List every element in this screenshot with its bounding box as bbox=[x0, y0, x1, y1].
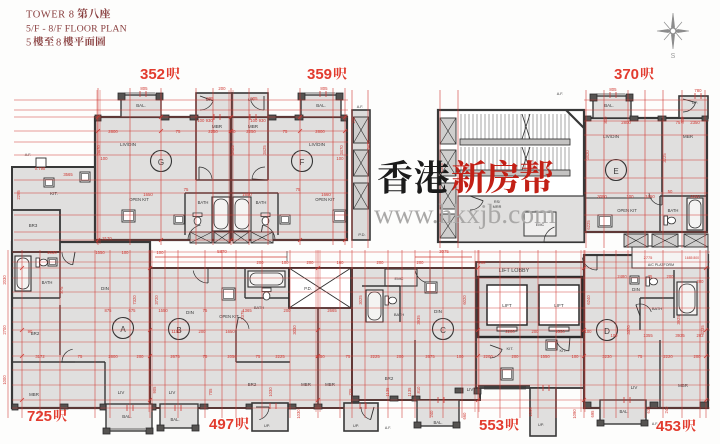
svg-text:497: 497 bbox=[209, 416, 234, 433]
svg-text:100: 100 bbox=[626, 194, 634, 199]
svg-text:3470: 3470 bbox=[366, 140, 371, 150]
svg-text:75: 75 bbox=[256, 354, 261, 359]
svg-text:705: 705 bbox=[348, 388, 353, 396]
svg-text:1135: 1135 bbox=[385, 387, 390, 397]
svg-text:KIT.: KIT. bbox=[50, 191, 58, 196]
svg-text:75: 75 bbox=[283, 129, 288, 134]
svg-text:A.F.: A.F. bbox=[557, 92, 564, 96]
svg-text:3935: 3935 bbox=[416, 315, 421, 325]
svg-text:695: 695 bbox=[590, 410, 595, 418]
svg-text:3420: 3420 bbox=[585, 150, 590, 160]
svg-text:BATH: BATH bbox=[42, 280, 53, 285]
svg-text:1550: 1550 bbox=[95, 250, 105, 255]
svg-text:90: 90 bbox=[28, 329, 33, 334]
svg-text:OPEN KIT: OPEN KIT bbox=[617, 208, 637, 213]
svg-text:780: 780 bbox=[694, 88, 702, 93]
svg-text:BAL.: BAL. bbox=[316, 103, 326, 108]
svg-text:BATH: BATH bbox=[652, 306, 662, 311]
svg-text:453: 453 bbox=[656, 418, 681, 435]
svg-text:A.F.: A.F. bbox=[652, 422, 658, 426]
svg-text:75: 75 bbox=[638, 354, 643, 359]
svg-text:LIV: LIV bbox=[169, 390, 176, 395]
svg-text:1095: 1095 bbox=[528, 407, 533, 417]
svg-text:3090: 3090 bbox=[597, 194, 607, 199]
svg-text:3235: 3235 bbox=[700, 325, 705, 335]
svg-text:2375: 2375 bbox=[240, 310, 245, 320]
svg-text:1090: 1090 bbox=[572, 409, 577, 419]
svg-text:200: 200 bbox=[228, 129, 236, 134]
svg-text:LIV/DIN: LIV/DIN bbox=[120, 142, 136, 147]
svg-text:2350: 2350 bbox=[690, 120, 700, 125]
svg-text:P.D.: P.D. bbox=[358, 232, 365, 237]
svg-text:725: 725 bbox=[27, 408, 52, 425]
svg-text:1660: 1660 bbox=[321, 192, 331, 197]
svg-text:BATH: BATH bbox=[394, 312, 404, 317]
svg-text:2200: 2200 bbox=[505, 329, 515, 334]
svg-text:3030: 3030 bbox=[292, 325, 297, 335]
svg-text:200: 200 bbox=[397, 354, 405, 359]
svg-text:75: 75 bbox=[203, 354, 208, 359]
svg-text:200: 200 bbox=[417, 260, 425, 265]
svg-text:LIV: LIV bbox=[467, 387, 474, 392]
svg-text:LIFT: LIFT bbox=[554, 303, 564, 308]
svg-text:3470: 3470 bbox=[96, 145, 101, 155]
svg-text:705: 705 bbox=[208, 388, 213, 396]
svg-text:240: 240 bbox=[664, 406, 669, 414]
svg-text:352: 352 bbox=[140, 66, 165, 83]
svg-text:675: 675 bbox=[129, 308, 137, 313]
svg-text:160: 160 bbox=[337, 260, 345, 265]
svg-text:100: 100 bbox=[457, 354, 465, 359]
svg-text:www.hkxjb.com: www.hkxjb.com bbox=[374, 198, 556, 229]
svg-text:UP.: UP. bbox=[538, 422, 544, 427]
svg-text:A/C PLATFORM: A/C PLATFORM bbox=[648, 263, 674, 267]
svg-text:3425: 3425 bbox=[230, 145, 235, 155]
svg-text:1550: 1550 bbox=[540, 354, 550, 359]
svg-text:100: 100 bbox=[572, 354, 580, 359]
svg-text:75: 75 bbox=[184, 187, 189, 192]
svg-text:200: 200 bbox=[137, 354, 145, 359]
svg-text:2050: 2050 bbox=[227, 354, 237, 359]
svg-text:UP.: UP. bbox=[353, 423, 359, 428]
svg-text:7320: 7320 bbox=[132, 295, 137, 305]
svg-text:75: 75 bbox=[203, 308, 208, 313]
svg-text:3170: 3170 bbox=[102, 236, 112, 241]
svg-text:2225: 2225 bbox=[275, 354, 285, 359]
svg-text:2800: 2800 bbox=[108, 129, 118, 134]
svg-text:1355: 1355 bbox=[643, 333, 653, 338]
svg-text:F: F bbox=[300, 158, 305, 167]
svg-text:2480: 2480 bbox=[617, 274, 627, 279]
svg-text:200: 200 bbox=[532, 329, 540, 334]
svg-text:805: 805 bbox=[320, 86, 328, 91]
svg-text:805: 805 bbox=[609, 87, 617, 92]
svg-text:BATH: BATH bbox=[254, 305, 264, 310]
svg-text:905: 905 bbox=[152, 386, 157, 394]
svg-text:1550: 1550 bbox=[158, 308, 168, 313]
svg-text:100: 100 bbox=[611, 333, 619, 338]
svg-text:6240: 6240 bbox=[586, 295, 591, 305]
svg-text:MBR: MBR bbox=[678, 383, 688, 388]
svg-text:100 930: 100 930 bbox=[197, 118, 213, 123]
svg-text:2665: 2665 bbox=[327, 308, 337, 313]
svg-text:3425: 3425 bbox=[262, 145, 267, 155]
svg-text:1030: 1030 bbox=[296, 409, 301, 419]
svg-text:BATH: BATH bbox=[198, 200, 209, 205]
svg-text:1100: 1100 bbox=[171, 329, 181, 334]
svg-text:MBR: MBR bbox=[325, 382, 335, 387]
svg-text:875: 875 bbox=[105, 308, 113, 313]
svg-text:LIV: LIV bbox=[118, 390, 125, 395]
svg-text:200: 200 bbox=[479, 260, 487, 265]
svg-text:BR3: BR3 bbox=[29, 223, 38, 228]
svg-text:2675: 2675 bbox=[425, 354, 435, 359]
svg-text:75: 75 bbox=[296, 187, 301, 192]
svg-text:1650: 1650 bbox=[242, 192, 252, 197]
svg-text:100: 100 bbox=[282, 260, 290, 265]
svg-text:S: S bbox=[671, 53, 676, 60]
svg-text:3720: 3720 bbox=[154, 295, 159, 305]
svg-text:50: 50 bbox=[668, 189, 673, 194]
svg-text:805: 805 bbox=[140, 86, 148, 91]
svg-text:2800: 2800 bbox=[315, 129, 325, 134]
svg-text:3470: 3470 bbox=[339, 145, 344, 155]
svg-text:2250: 2250 bbox=[246, 129, 256, 134]
svg-text:200: 200 bbox=[199, 329, 207, 334]
svg-text:100: 100 bbox=[100, 156, 108, 161]
svg-text:BR2: BR2 bbox=[385, 376, 394, 381]
svg-text:A: A bbox=[120, 325, 126, 334]
svg-text:630: 630 bbox=[646, 406, 651, 414]
svg-text:3225: 3225 bbox=[662, 153, 667, 163]
svg-text:BAL.: BAL. bbox=[604, 103, 614, 108]
svg-text:3230: 3230 bbox=[602, 354, 612, 359]
svg-text:LIV: LIV bbox=[631, 385, 638, 390]
svg-text:E: E bbox=[613, 167, 618, 176]
svg-text:2800: 2800 bbox=[108, 354, 118, 359]
svg-text:810: 810 bbox=[416, 386, 421, 394]
svg-text:BAL.: BAL. bbox=[619, 409, 628, 414]
svg-text:2675: 2675 bbox=[170, 354, 180, 359]
svg-text:UP.: UP. bbox=[264, 423, 270, 428]
svg-text:200: 200 bbox=[377, 260, 385, 265]
svg-text:75: 75 bbox=[346, 354, 351, 359]
svg-text:DIN: DIN bbox=[632, 287, 640, 292]
svg-text:875: 875 bbox=[59, 286, 64, 294]
svg-text:LIV/DIN: LIV/DIN bbox=[309, 142, 325, 147]
svg-text:2225: 2225 bbox=[370, 354, 380, 359]
svg-text:240: 240 bbox=[429, 410, 434, 418]
svg-text:LIFT: LIFT bbox=[502, 303, 512, 308]
svg-text:100: 100 bbox=[156, 250, 164, 255]
svg-text:359: 359 bbox=[307, 66, 332, 83]
svg-text:BATH: BATH bbox=[256, 200, 267, 205]
svg-text:200: 200 bbox=[257, 260, 265, 265]
svg-text:BAL.: BAL. bbox=[433, 420, 442, 425]
svg-text:3172: 3172 bbox=[35, 354, 45, 359]
svg-text:2700: 2700 bbox=[2, 325, 7, 335]
svg-text:MBR: MBR bbox=[29, 392, 39, 397]
svg-text:800: 800 bbox=[603, 116, 608, 124]
svg-text:2030: 2030 bbox=[2, 275, 7, 285]
svg-text:200: 200 bbox=[694, 354, 702, 359]
svg-text:A.F.: A.F. bbox=[385, 426, 391, 430]
svg-text:DIN: DIN bbox=[186, 310, 194, 315]
svg-text:3925: 3925 bbox=[676, 315, 681, 325]
svg-text:200: 200 bbox=[697, 279, 705, 284]
svg-text:KIT.: KIT. bbox=[507, 346, 514, 351]
svg-text:100: 100 bbox=[585, 329, 593, 334]
svg-text:1550: 1550 bbox=[555, 329, 565, 334]
svg-text:DIN: DIN bbox=[434, 309, 442, 314]
svg-text:BATH: BATH bbox=[668, 208, 679, 213]
svg-text:2250: 2250 bbox=[208, 129, 218, 134]
svg-text:1030: 1030 bbox=[268, 387, 273, 397]
svg-text:100 930: 100 930 bbox=[250, 118, 266, 123]
svg-text:905: 905 bbox=[250, 96, 258, 101]
svg-text:8: 8 bbox=[56, 38, 61, 49]
svg-text:2800: 2800 bbox=[621, 120, 631, 125]
svg-text:2260: 2260 bbox=[690, 194, 700, 199]
svg-text:D: D bbox=[604, 327, 610, 336]
svg-text:5: 5 bbox=[26, 38, 31, 49]
svg-text:75: 75 bbox=[176, 129, 181, 134]
svg-text:3565: 3565 bbox=[63, 172, 73, 177]
svg-text:P.D.: P.D. bbox=[304, 286, 312, 291]
svg-text:5/F - 8/F FLOOR PLAN: 5/F - 8/F FLOOR PLAN bbox=[26, 24, 127, 35]
svg-text:A.F.: A.F. bbox=[357, 105, 364, 109]
svg-text:0.790: 0.790 bbox=[35, 166, 46, 171]
svg-text:660: 660 bbox=[462, 412, 467, 420]
svg-text:DIN: DIN bbox=[101, 286, 109, 291]
svg-text:2050: 2050 bbox=[315, 354, 325, 359]
svg-text:800: 800 bbox=[680, 116, 685, 124]
svg-text:200: 200 bbox=[667, 274, 675, 279]
svg-text:LIFT LOBBY: LIFT LOBBY bbox=[499, 268, 530, 274]
svg-text:200: 200 bbox=[218, 86, 226, 91]
svg-text:MBR: MBR bbox=[301, 382, 311, 387]
svg-text:OPEN KIT: OPEN KIT bbox=[129, 197, 149, 202]
svg-text:100: 100 bbox=[336, 156, 344, 161]
svg-text:1650: 1650 bbox=[645, 194, 655, 199]
svg-text:1650: 1650 bbox=[225, 329, 235, 334]
svg-text:6225: 6225 bbox=[586, 220, 591, 230]
svg-text:200: 200 bbox=[307, 260, 315, 265]
svg-text:1000: 1000 bbox=[2, 375, 7, 385]
svg-text:905: 905 bbox=[206, 96, 214, 101]
svg-text:2030: 2030 bbox=[47, 250, 57, 255]
svg-text:BAL.: BAL. bbox=[136, 103, 146, 108]
svg-text:75: 75 bbox=[78, 354, 83, 359]
svg-text:OPEN KIT: OPEN KIT bbox=[315, 197, 335, 202]
svg-text:200: 200 bbox=[284, 308, 292, 313]
svg-text:75: 75 bbox=[648, 274, 653, 279]
svg-text:2295: 2295 bbox=[16, 190, 21, 200]
svg-text:1135: 1135 bbox=[407, 387, 412, 397]
svg-text:3370: 3370 bbox=[626, 325, 631, 335]
svg-text:6020: 6020 bbox=[462, 295, 467, 305]
svg-text:BR2: BR2 bbox=[248, 382, 257, 387]
svg-text:100: 100 bbox=[122, 250, 130, 255]
svg-text:3075: 3075 bbox=[439, 249, 449, 254]
svg-text:200: 200 bbox=[512, 354, 520, 359]
svg-text:2200: 2200 bbox=[483, 354, 493, 359]
svg-text:200: 200 bbox=[351, 116, 356, 124]
svg-text:370: 370 bbox=[614, 66, 639, 83]
svg-text:BAL.: BAL. bbox=[122, 414, 132, 419]
svg-text:2220: 2220 bbox=[663, 354, 673, 359]
svg-text:1685 800: 1685 800 bbox=[685, 256, 699, 260]
svg-text:3935: 3935 bbox=[675, 333, 685, 338]
svg-text:TOWER 8: TOWER 8 bbox=[26, 10, 75, 21]
svg-text:1650: 1650 bbox=[143, 192, 153, 197]
svg-text:3025: 3025 bbox=[358, 295, 363, 305]
svg-text:553: 553 bbox=[479, 417, 504, 434]
